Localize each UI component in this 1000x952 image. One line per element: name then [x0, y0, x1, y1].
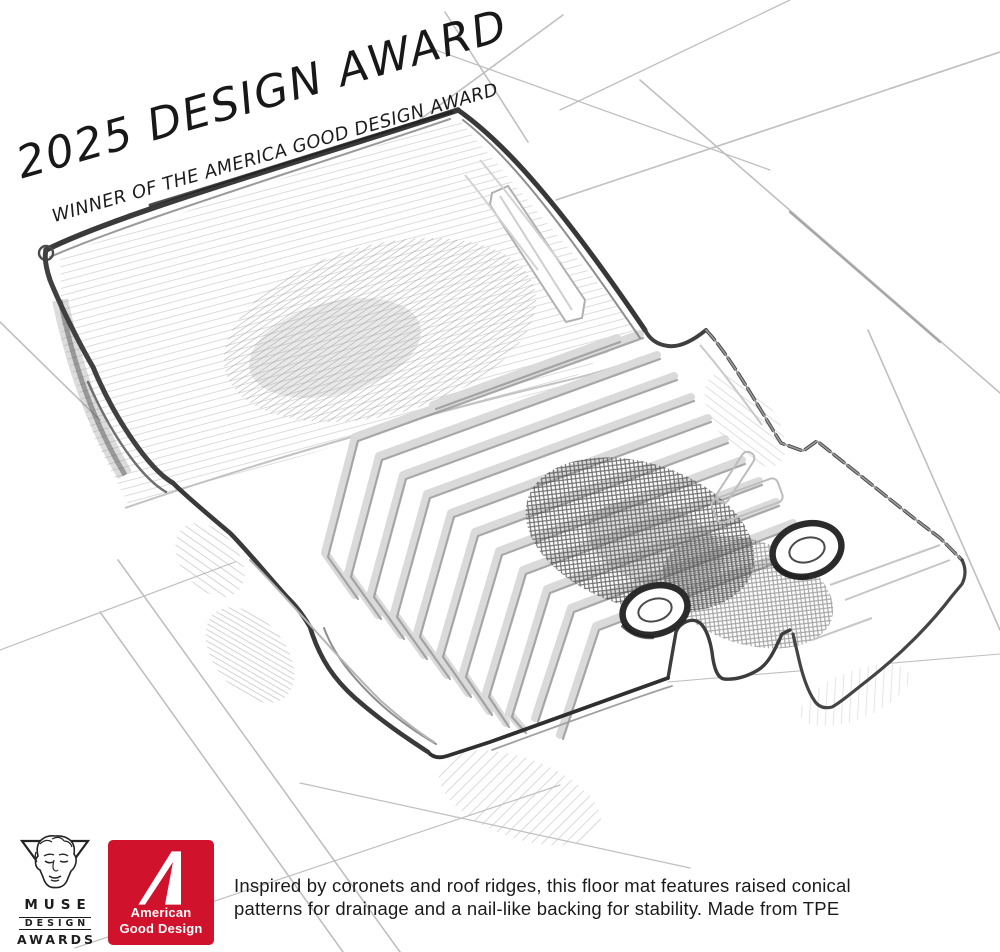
caption-line-1: Inspired by coronets and roof ridges, th…: [234, 874, 851, 897]
agd-badge-line1: American: [108, 905, 214, 921]
american-good-design-badge: American Good Design: [108, 840, 214, 945]
product-caption: Inspired by coronets and roof ridges, th…: [234, 874, 851, 920]
caption-line-2: patterns for drainage and a nail-like ba…: [234, 897, 851, 920]
muse-face-icon: [14, 834, 96, 890]
muse-badge-name: MUSE: [14, 897, 96, 913]
agd-badge-line2: Good Design: [108, 921, 214, 937]
muse-design-awards-badge: MUSE DESIGN AWARDS: [14, 834, 96, 946]
good-design-a-icon: [128, 846, 194, 906]
muse-badge-awards-label: AWARDS: [14, 932, 96, 947]
muse-badge-design-label: DESIGN: [19, 917, 92, 930]
product-image: 2025 DESIGN AWARD WINNER OF THE AMERICA …: [0, 0, 1000, 952]
